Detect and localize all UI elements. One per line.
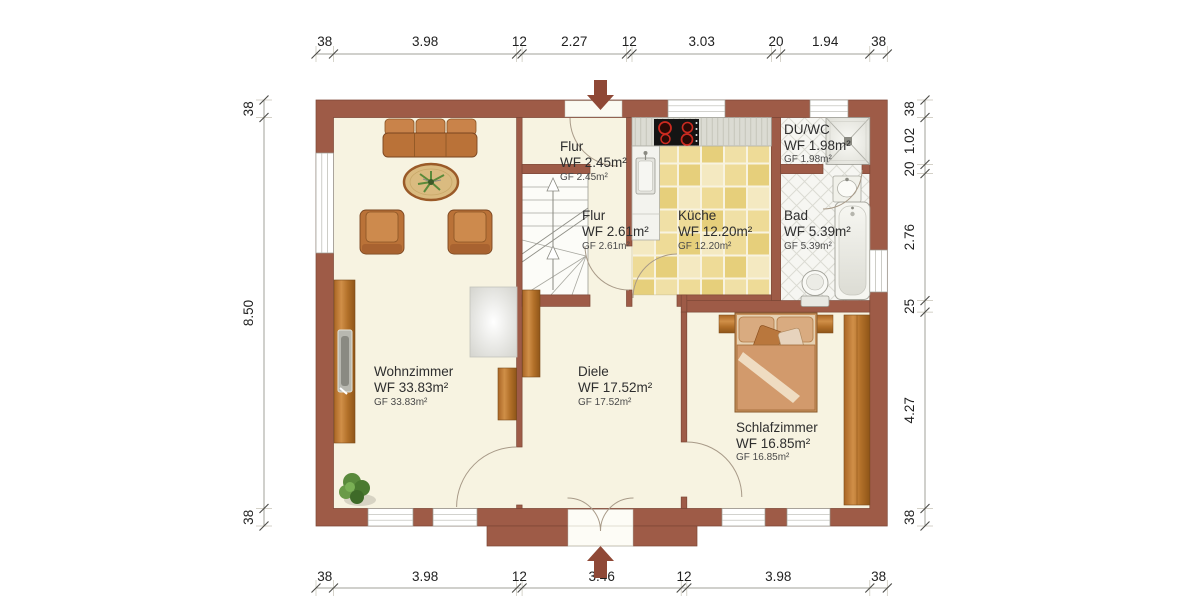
- dim-top-1: 3.98: [412, 34, 438, 49]
- dim-top-8: 38: [871, 34, 886, 49]
- room-gf: GF 1.98m²: [784, 154, 832, 165]
- room-wf: WF 12.20m²: [678, 224, 753, 239]
- bathtub: [835, 202, 870, 300]
- floor-plan-page: 38 3.98 12 2.27 12 3.03 20 1.94 38 38 3.…: [0, 0, 1200, 600]
- porch-wall-left: [487, 526, 568, 546]
- dim-bottom-5: 3.98: [765, 569, 791, 584]
- dim-right-6: 38: [902, 510, 917, 525]
- room-gf: GF 33.83m²: [374, 397, 428, 408]
- room-name: Flur: [560, 139, 584, 154]
- room-name: DU/WC: [784, 122, 830, 137]
- room-name: Wohnzimmer: [374, 364, 454, 379]
- room-wf: WF 17.52m²: [578, 380, 653, 395]
- wall-diele-schlafzimmer: [681, 312, 687, 442]
- dim-bottom-2: 12: [512, 569, 527, 584]
- window-left: [316, 153, 334, 253]
- staircase: [522, 174, 588, 295]
- room-wf: WF 1.98m²: [784, 138, 851, 153]
- sofa: [383, 119, 477, 157]
- cabinet-wohnzimmer: [498, 368, 517, 420]
- room-wf: WF 16.85m²: [736, 436, 811, 451]
- room-name: Diele: [578, 364, 609, 379]
- room-gf: GF 2.45m²: [560, 172, 608, 183]
- room-gf: GF 2.61m²: [582, 241, 630, 252]
- toilet: [801, 271, 829, 307]
- wall-duwc-bad: [781, 164, 823, 173]
- dimension-line-right: 38 1.02 20 2.76 25 4.27 38: [902, 96, 933, 531]
- room-gf: GF 5.39m²: [784, 241, 832, 252]
- window-top-duwc: [810, 100, 848, 118]
- floor-plan-drawing: 38 3.98 12 2.27 12 3.03 20 1.94 38 38 3.…: [0, 0, 1200, 600]
- armchair-left: [360, 210, 404, 254]
- kitchen-counter: [632, 118, 771, 147]
- dim-right-5: 4.27: [902, 397, 917, 423]
- nightstand-right: [817, 315, 833, 333]
- window-bottom-schlafzimmer-2: [787, 509, 830, 527]
- room-wf: WF 33.83m²: [374, 380, 449, 395]
- room-name: Flur: [582, 208, 606, 223]
- nightstand-left: [719, 315, 735, 333]
- room-wf: WF 2.45m²: [560, 155, 627, 170]
- window-top-kueche: [668, 100, 725, 118]
- dim-top-6: 20: [768, 34, 783, 49]
- wall-schlafzimmer-top: [687, 301, 870, 313]
- dim-top-3: 2.27: [561, 34, 587, 49]
- rug-tv-square: [470, 287, 517, 357]
- dim-top-0: 38: [317, 34, 332, 49]
- dim-bottom-1: 3.98: [412, 569, 438, 584]
- dim-right-4: 25: [902, 299, 917, 314]
- room-gf: GF 17.52m²: [578, 397, 632, 408]
- room-name: Schlafzimmer: [736, 420, 818, 435]
- dim-top-4: 12: [622, 34, 637, 49]
- cabinet-diele: [523, 290, 541, 377]
- dim-bottom-6: 38: [871, 569, 886, 584]
- dim-bottom-0: 38: [317, 569, 332, 584]
- stove: [654, 119, 699, 146]
- dim-left-1: 8.50: [241, 300, 256, 326]
- room-wf: WF 5.39m²: [784, 224, 851, 239]
- window-bottom-wohnzimmer-2: [433, 509, 477, 527]
- dim-top-7: 1.94: [812, 34, 839, 49]
- entry-door-top-sill: [565, 101, 622, 117]
- dim-top-5: 3.03: [689, 34, 715, 49]
- dim-top-2: 12: [512, 34, 527, 49]
- room-gf: GF 16.85m²: [736, 452, 790, 463]
- dim-right-0: 38: [902, 101, 917, 116]
- room-wf: WF 2.61m²: [582, 224, 649, 239]
- dim-bottom-4: 12: [676, 569, 691, 584]
- window-bottom-schlafzimmer-1: [722, 509, 765, 527]
- wall-wohnzimmer-flur: [517, 118, 523, 448]
- window-right-bad: [870, 250, 888, 292]
- dimension-line-top: 38 3.98 12 2.27 12 3.03 20 1.94 38: [312, 34, 892, 62]
- porch-wall-right: [633, 526, 697, 546]
- sideboard: [334, 280, 355, 443]
- wall-kueche-bad: [771, 118, 780, 301]
- dim-right-3: 2.76: [902, 224, 917, 250]
- dim-left-2: 38: [241, 510, 256, 525]
- coffee-table: [404, 164, 458, 200]
- bed: [719, 313, 833, 412]
- dim-right-2: 20: [902, 161, 917, 176]
- dim-left-0: 38: [241, 101, 256, 116]
- armchair-right: [448, 210, 492, 254]
- room-gf: GF 12.20m²: [678, 241, 732, 252]
- room-name: Bad: [784, 208, 808, 223]
- room-name: Küche: [678, 208, 716, 223]
- window-bottom-wohnzimmer-1: [368, 509, 413, 527]
- dim-right-1: 1.02: [902, 128, 917, 154]
- dimension-line-left: 38 8.50 38: [241, 96, 272, 531]
